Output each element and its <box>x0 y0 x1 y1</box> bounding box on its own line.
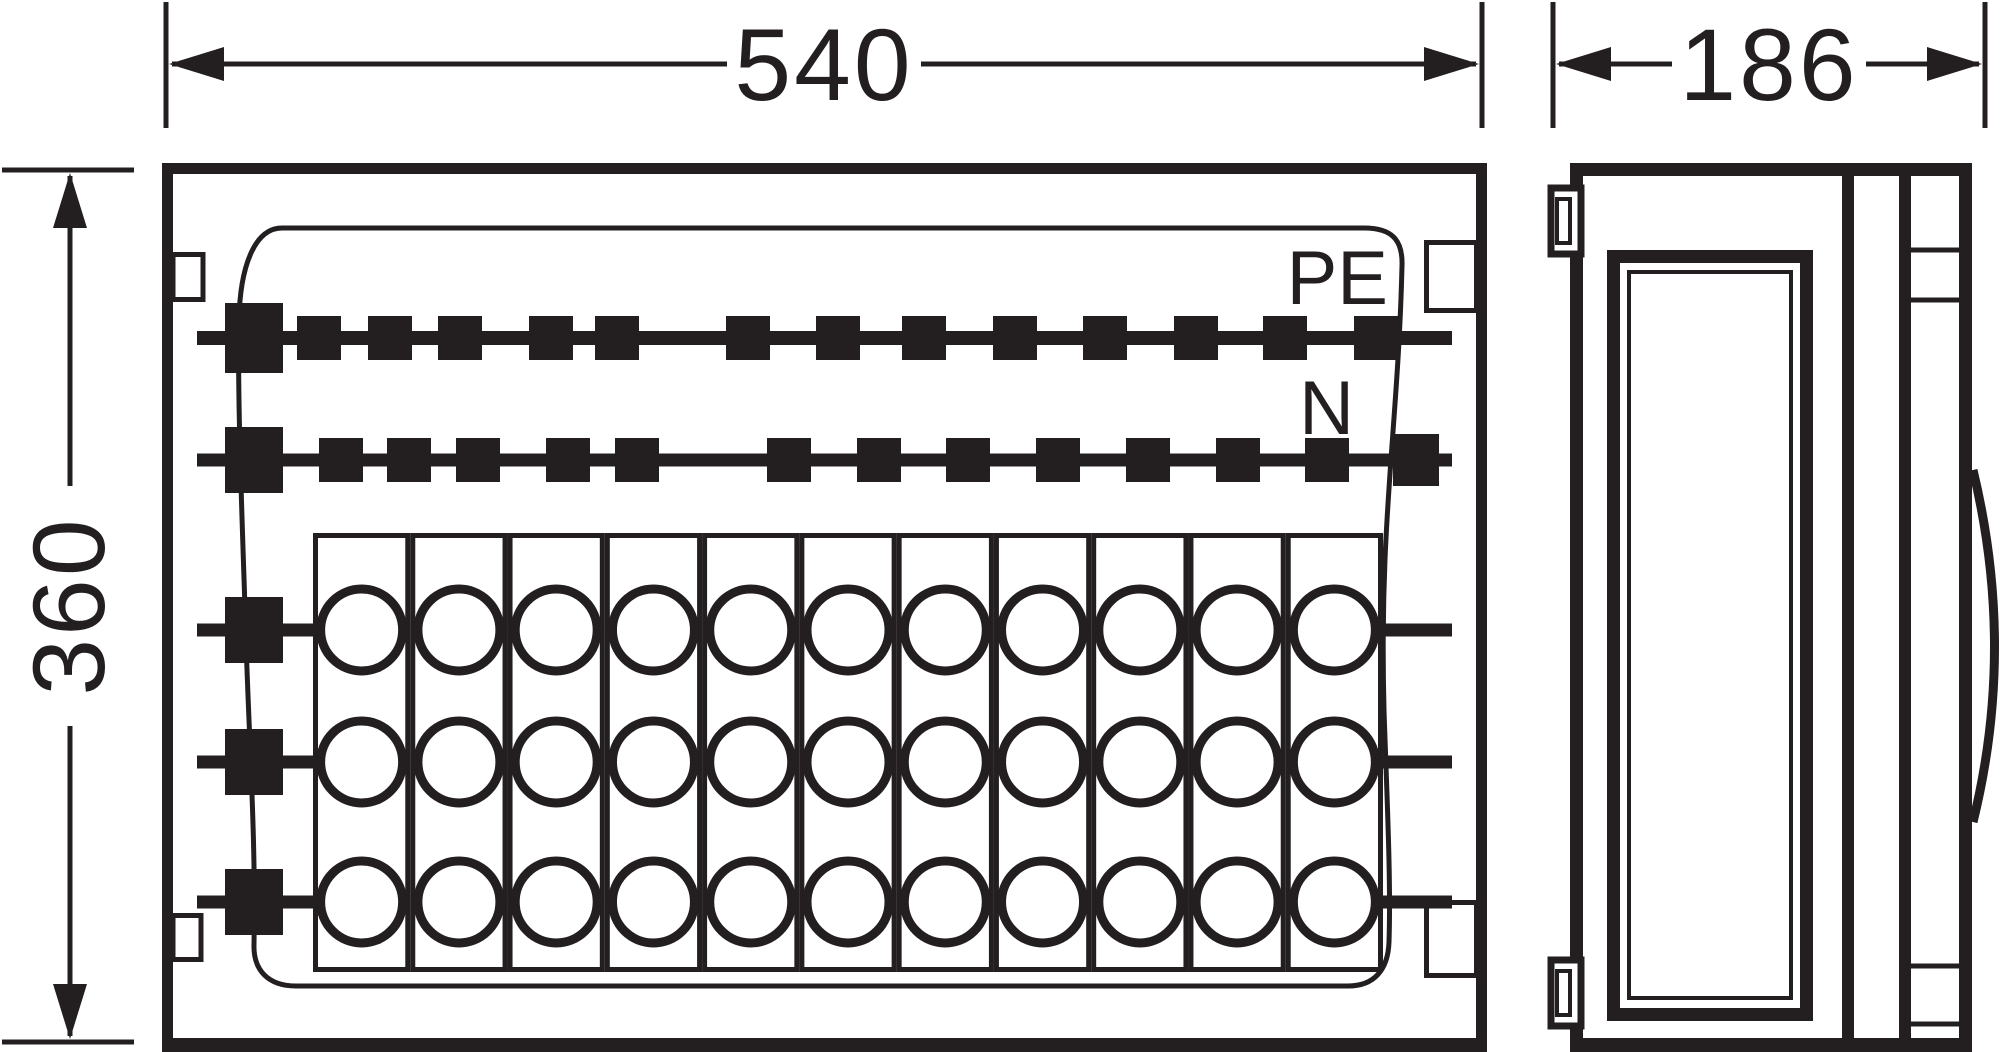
hinge-arc <box>1973 470 1995 822</box>
mount-lug-bottom <box>1551 960 1581 1026</box>
n-busbar: N <box>197 366 1452 493</box>
n-busbar-clip <box>546 438 590 482</box>
side-view <box>1551 170 1995 1050</box>
door-panel-outer <box>1614 257 1807 1015</box>
row-terminal-block <box>225 597 283 663</box>
door-panel-inner <box>1629 272 1791 998</box>
n-busbar-clip <box>387 438 431 482</box>
n-busbar-clip <box>767 438 811 482</box>
n-busbar-clip <box>1036 438 1080 482</box>
wall-tab-bottom-left <box>173 916 201 960</box>
wall-tab-bottom-right <box>1427 903 1477 976</box>
pe-busbar-clip <box>816 316 860 360</box>
n-busbar-clip <box>946 438 990 482</box>
arrowhead-right-icon <box>1424 47 1479 81</box>
arrowhead-up-icon <box>53 173 87 228</box>
pe-busbar-clip <box>1174 316 1218 360</box>
n-busbar-clip <box>456 438 500 482</box>
pe-busbar-clip <box>297 316 341 360</box>
arrowhead-down-icon <box>53 984 87 1039</box>
n-busbar-clip <box>615 438 659 482</box>
pe-busbar-clip <box>438 316 482 360</box>
pe-label: PE <box>1287 236 1388 321</box>
n-busbar-clip <box>1126 438 1170 482</box>
n-label: N <box>1299 366 1354 451</box>
n-feed-block <box>225 427 283 493</box>
n-busbar-clip <box>1216 438 1260 482</box>
front-view: PE N <box>162 169 1487 1049</box>
dimension-value: 186 <box>1679 8 1858 122</box>
pe-feed-block <box>225 303 283 373</box>
pe-busbar-clip <box>993 316 1037 360</box>
technical-drawing: 540 186 360 PE <box>0 0 2000 1052</box>
pe-busbar-clip <box>1083 316 1127 360</box>
dimension-side-width: 186 <box>1553 2 1985 128</box>
n-busbar-clip <box>319 438 363 482</box>
n-busbar-clip <box>857 438 901 482</box>
pe-busbar-clip <box>529 316 573 360</box>
dimension-value: 540 <box>734 8 913 122</box>
n-busbar-end-block <box>1393 434 1439 486</box>
terminal-grid-columns <box>316 536 1381 970</box>
row-terminal-block <box>225 869 283 935</box>
pe-busbar-clip <box>1354 316 1398 360</box>
mount-lug-top <box>1551 188 1581 254</box>
arrowhead-left-icon <box>1556 47 1611 81</box>
dimension-front-height: 360 <box>2 170 134 1042</box>
pe-busbar: PE <box>197 236 1452 373</box>
dimension-front-width: 540 <box>166 2 1482 128</box>
dimension-value: 360 <box>12 516 126 695</box>
pe-busbar-clip <box>595 316 639 360</box>
wall-tab-top-right <box>1427 243 1477 311</box>
arrowhead-right-icon <box>1927 47 1982 81</box>
pe-busbar-clip <box>902 316 946 360</box>
pe-busbar-clip <box>726 316 770 360</box>
pe-busbar-clip <box>1263 316 1307 360</box>
arrowhead-left-icon <box>169 47 224 81</box>
row-terminal-block <box>225 729 283 795</box>
wall-tab-top-left <box>173 255 203 300</box>
pe-busbar-clip <box>368 316 412 360</box>
